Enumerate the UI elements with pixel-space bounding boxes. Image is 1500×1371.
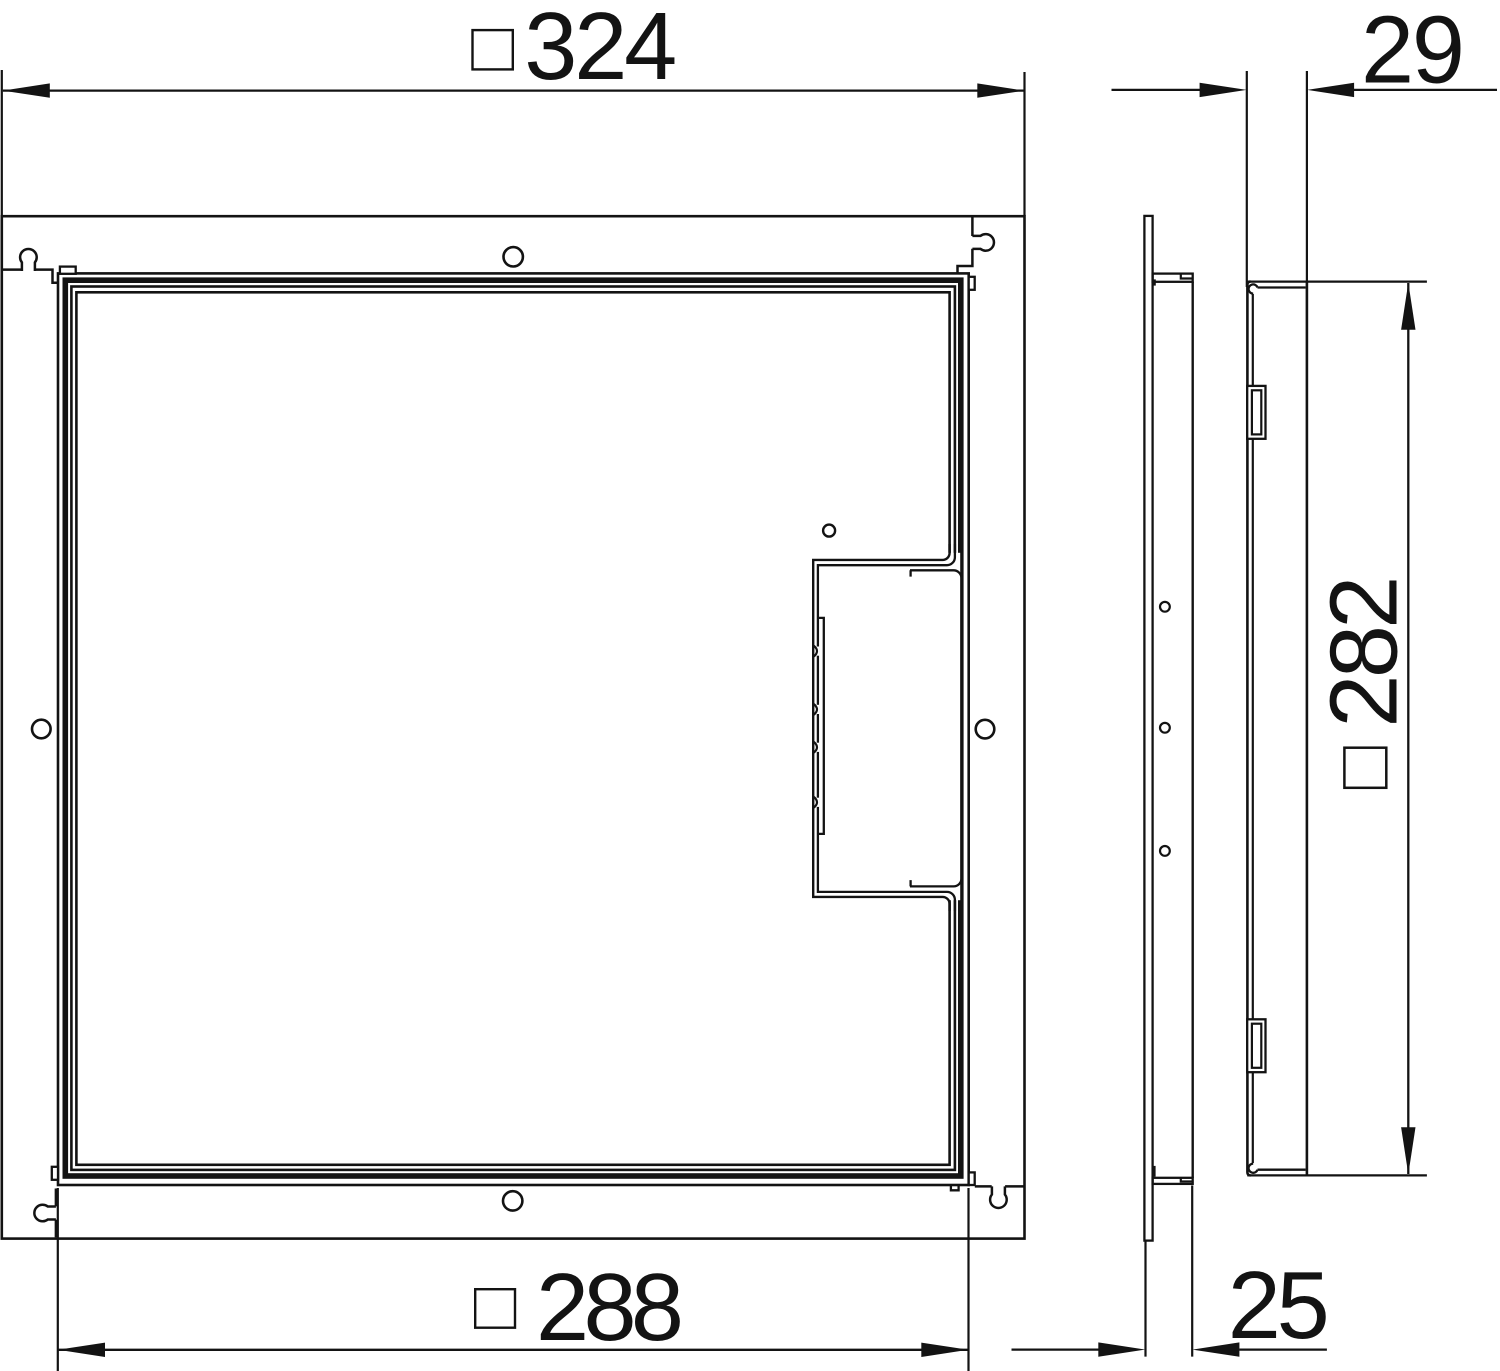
svg-text:29: 29 (1361, 0, 1465, 104)
svg-text:324: 324 (524, 0, 677, 100)
svg-text:282: 282 (1312, 576, 1418, 728)
svg-text:288: 288 (536, 1255, 684, 1361)
svg-text:25: 25 (1228, 1253, 1330, 1359)
